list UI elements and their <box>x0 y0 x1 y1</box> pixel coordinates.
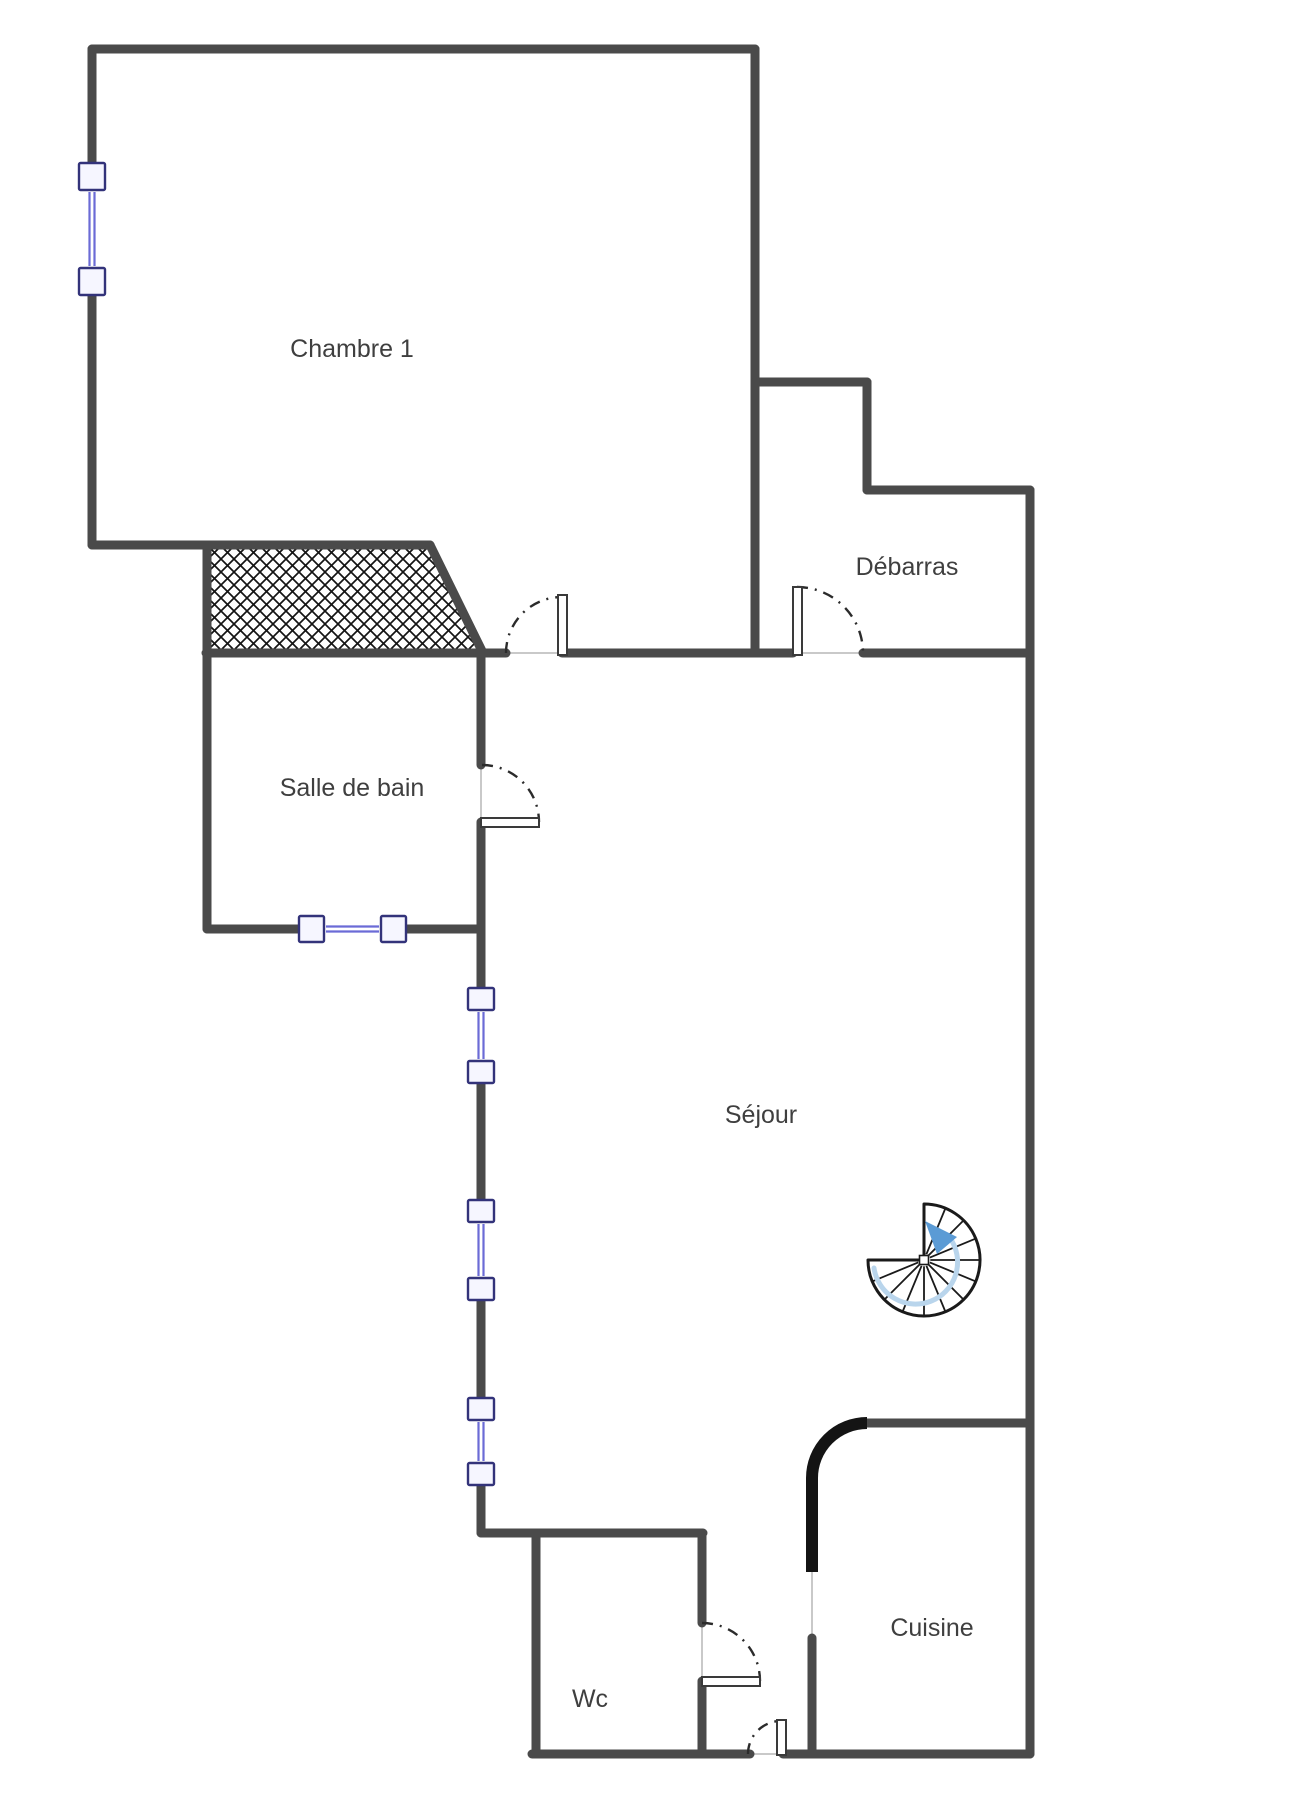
stair-hub <box>920 1256 929 1265</box>
room-label-wc: Wc <box>572 1685 608 1713</box>
salle-de-bain-door-leaf <box>481 818 539 827</box>
sejour-window-2-frame <box>468 1278 494 1300</box>
room-label-cuisine: Cuisine <box>890 1614 973 1642</box>
salle-de-bain-door-swing-arc <box>482 765 539 822</box>
salle-de-bain-window-frame <box>381 916 406 942</box>
room-label-sejour: Séjour <box>725 1101 797 1129</box>
sejour-window-1-frame <box>468 988 494 1010</box>
sejour-window-3-frame <box>468 1398 494 1420</box>
floorplan-canvas: Chambre 1DébarrasSalle de bainSéjourWcCu… <box>0 0 1304 1816</box>
floorplan-svg: Chambre 1DébarrasSalle de bainSéjourWcCu… <box>0 0 1304 1816</box>
chambre-door-leaf <box>558 595 567 655</box>
room-label-salle-de-bain: Salle de bain <box>280 774 425 802</box>
debarras-door-swing-arc <box>797 587 863 653</box>
room-label-chambre-1: Chambre 1 <box>290 335 414 363</box>
wc-door-leaf <box>702 1677 760 1686</box>
chambre-window-frame <box>79 163 105 190</box>
sejour-window-1-frame <box>468 1061 494 1083</box>
chambre-window-frame <box>79 268 105 295</box>
room-label-debarras: Débarras <box>856 553 959 581</box>
salle-de-bain-window-frame <box>299 916 324 942</box>
debarras-door-leaf <box>793 587 802 655</box>
sejour-window-2-frame <box>468 1200 494 1222</box>
chambre-door-swing-arc <box>506 597 562 653</box>
sejour-window-3-frame <box>468 1463 494 1485</box>
curved-wall-arc <box>812 1423 867 1478</box>
wc-door-swing-arc <box>702 1623 760 1681</box>
entry-door-leaf <box>777 1720 786 1755</box>
